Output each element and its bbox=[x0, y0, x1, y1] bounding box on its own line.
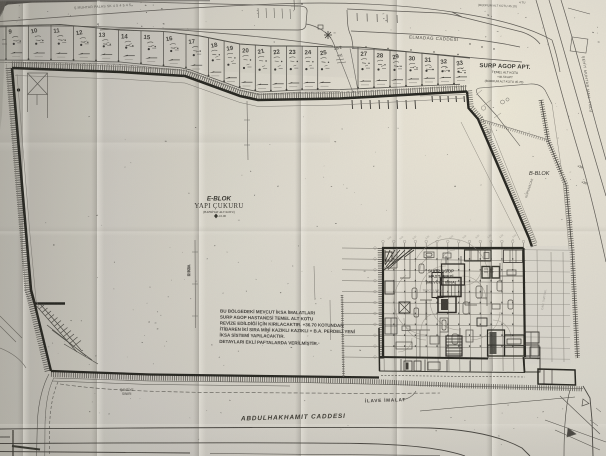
svg-text:(MEVCUT BİNA): (MEVCUT BİNA) bbox=[426, 279, 457, 284]
svg-text:4 TU: 4 TU bbox=[519, 1, 525, 5]
svg-text:SINIRI: SINIRI bbox=[122, 392, 132, 396]
svg-text:SURP AGOP: SURP AGOP bbox=[428, 269, 454, 274]
svg-text:-10.00: -10.00 bbox=[218, 214, 227, 218]
svg-text:TESCİLLİ BİNA: TESCİLLİ BİNA bbox=[423, 288, 444, 293]
svg-text:E-BLOK: E-BLOK bbox=[207, 196, 232, 203]
svg-text:HASTANESİ: HASTANESİ bbox=[428, 274, 453, 279]
svg-text:i2 iKSA: i2 iKSA bbox=[187, 264, 191, 276]
svg-text:B-BLOK: B-BLOK bbox=[529, 171, 550, 177]
